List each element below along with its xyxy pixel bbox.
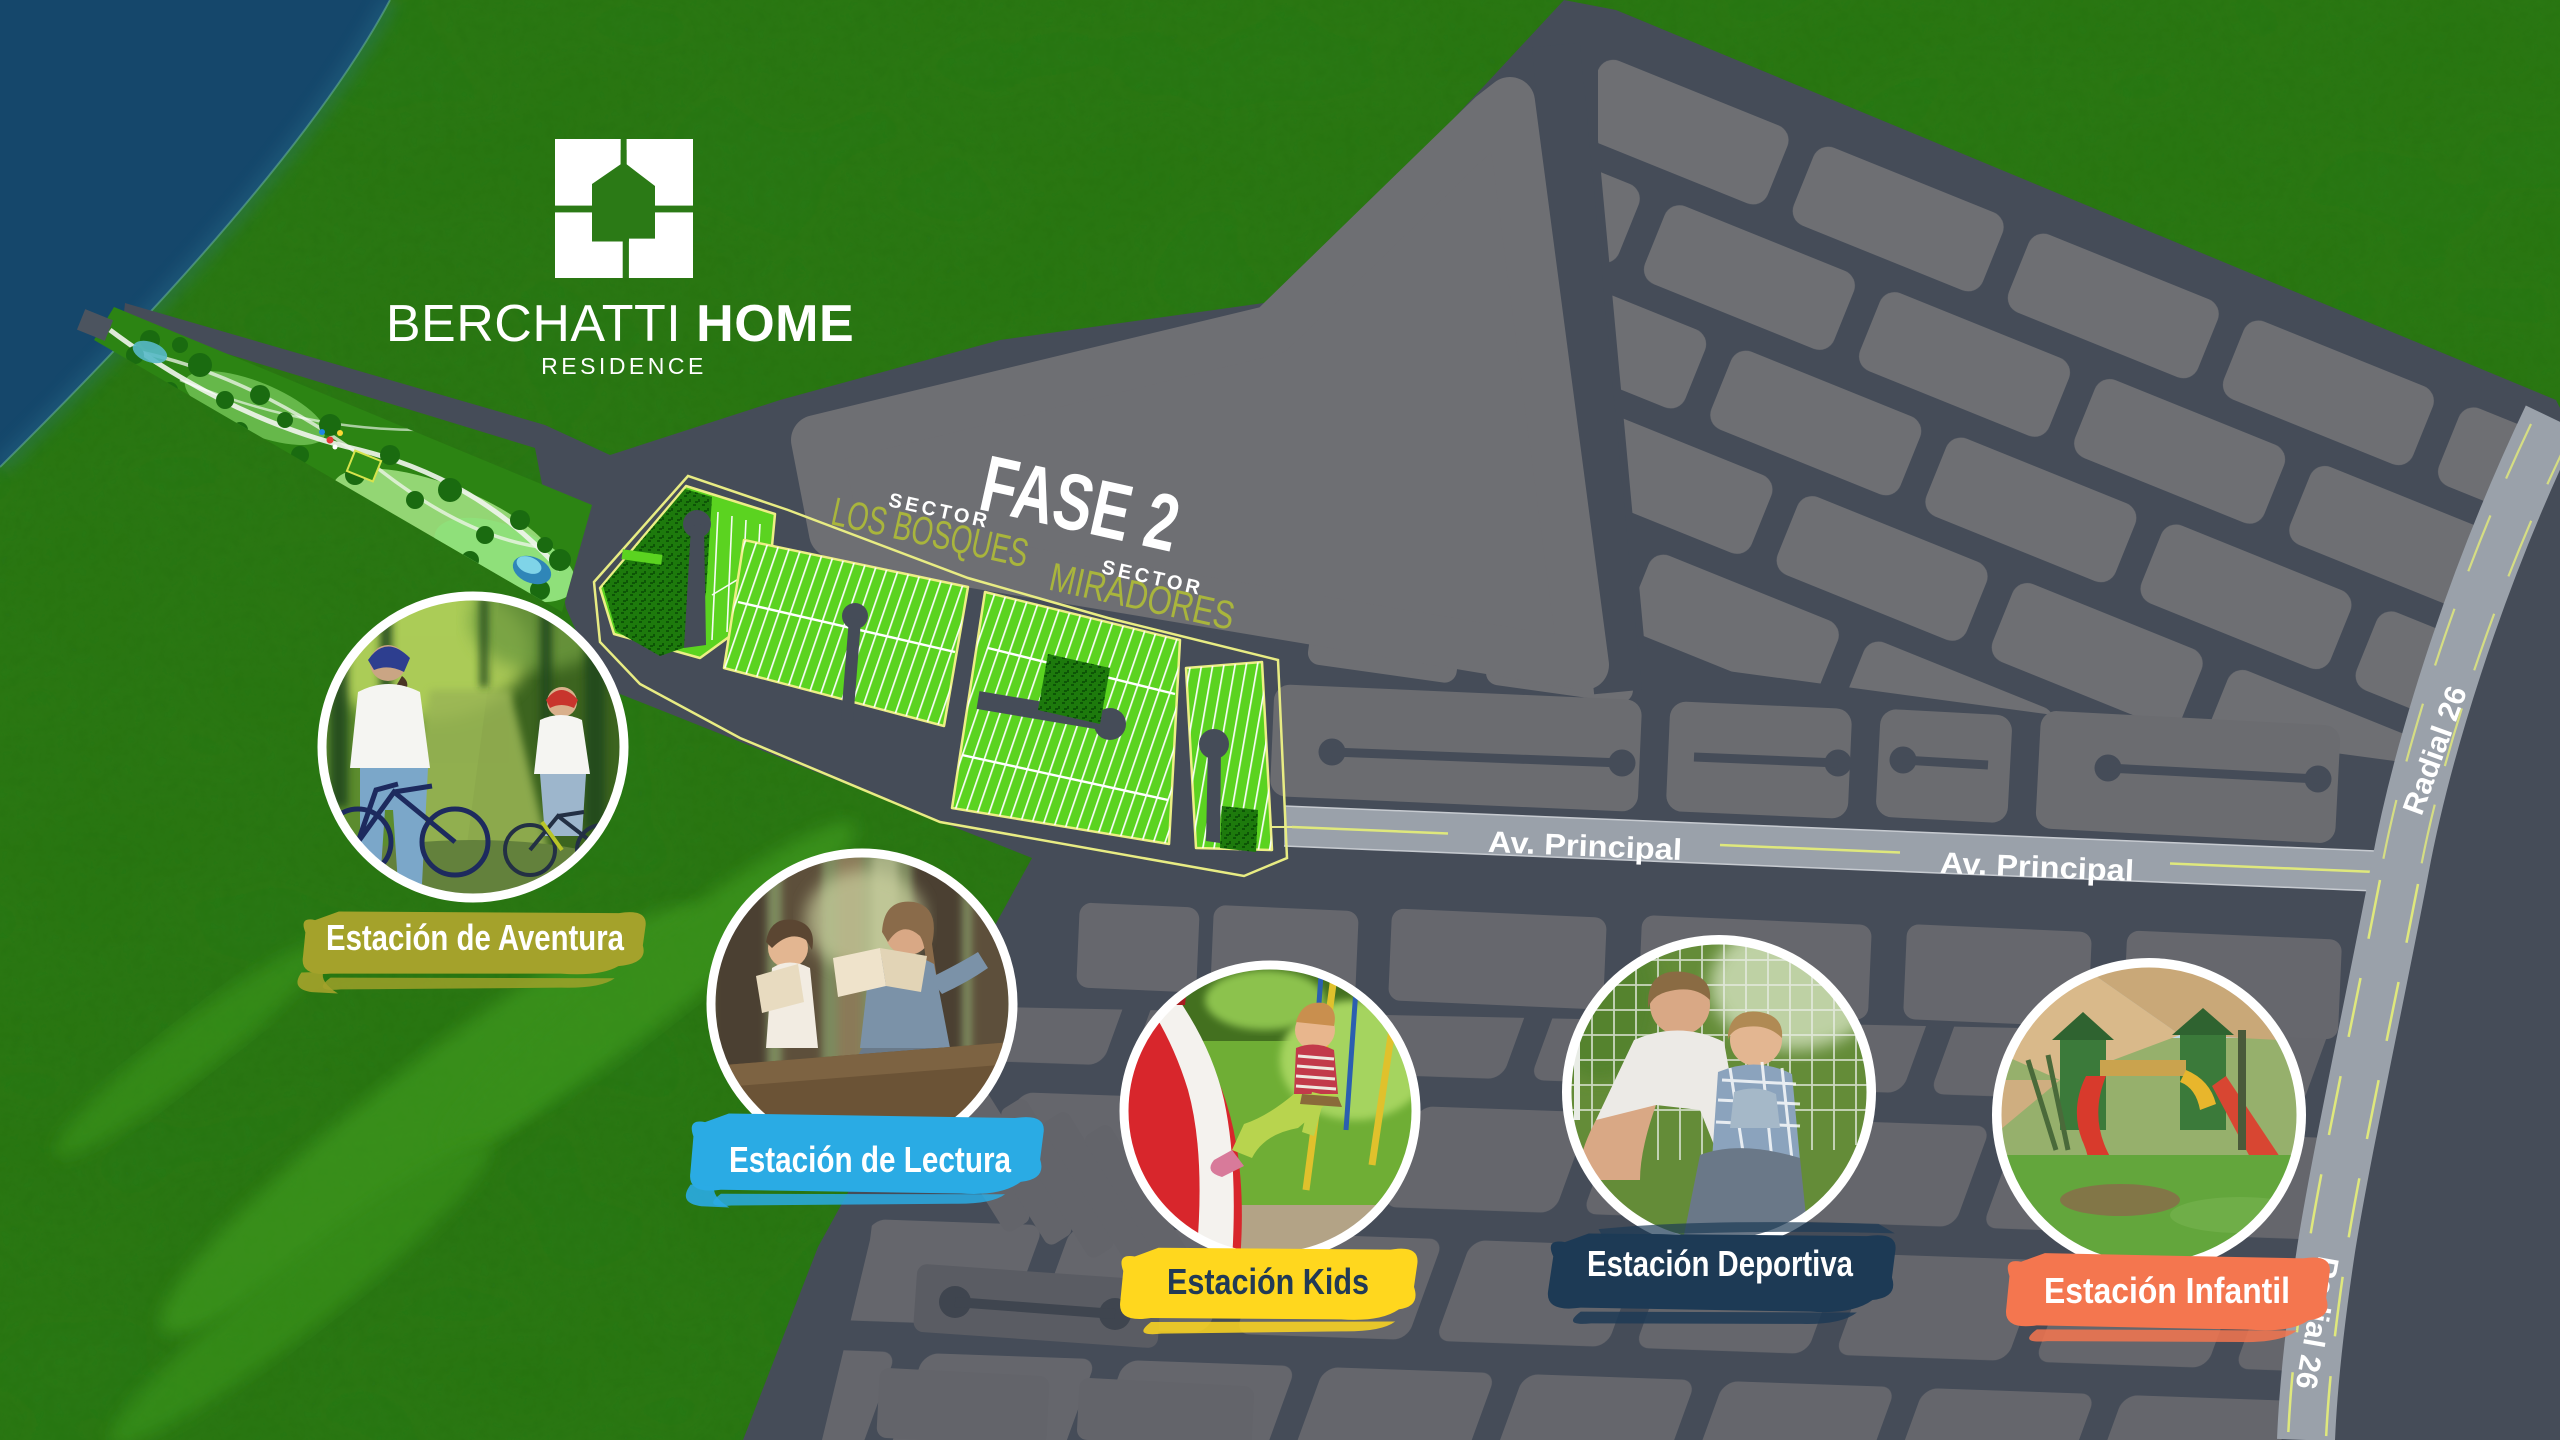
svg-text:Estación Deportiva: Estación Deportiva: [1587, 1243, 1854, 1284]
svg-text:RESIDENCE: RESIDENCE: [541, 353, 707, 379]
svg-text:Estación de Lectura: Estación de Lectura: [729, 1139, 1012, 1180]
svg-text:Estación Infantil: Estación Infantil: [2044, 1270, 2290, 1311]
svg-text:Estación de Aventura: Estación de Aventura: [326, 917, 625, 958]
svg-text:Estación Kids: Estación Kids: [1167, 1261, 1369, 1302]
svg-text:BERCHATTI HOME: BERCHATTI HOME: [386, 295, 854, 353]
